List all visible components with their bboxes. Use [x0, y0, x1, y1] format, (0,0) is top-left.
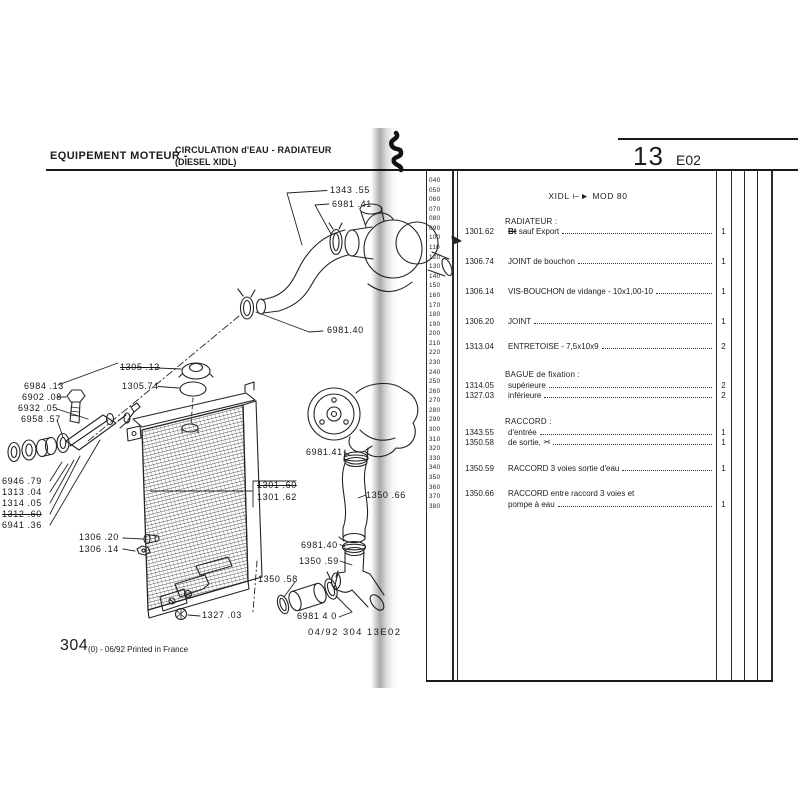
- part-ref: 1306.14: [460, 287, 505, 296]
- part-label-1313-04: 1313 .04: [2, 487, 42, 497]
- part-description: d'entrée: [508, 428, 537, 437]
- part-qty: 1: [716, 438, 731, 447]
- part-label-6981-41-top: 6981 .41: [332, 199, 372, 209]
- table-row: 1306.14 VIS-BOUCHON de vidange - 10x1,00…: [460, 287, 731, 296]
- dotted-leader: [656, 293, 712, 294]
- part-qty: 2: [716, 381, 731, 390]
- outlet-hose-drawing: [287, 582, 329, 612]
- dotted-leader: [562, 233, 712, 234]
- table-row: 1327.03 inférieure 2: [460, 391, 731, 400]
- part-qty: 2: [716, 391, 731, 400]
- part-description: VIS-BOUCHON de vidange - 10x1,00-10: [508, 287, 653, 296]
- table-row: 1306.20 JOINT 1: [460, 317, 731, 326]
- part-description: inférieure: [508, 391, 541, 400]
- scissors-icon: ✂: [543, 438, 551, 447]
- part-note-struck: Bt: [508, 227, 516, 236]
- table-row: 1350.59 RACCORD 3 voies sortie d'eau 1: [460, 464, 731, 473]
- part-qty: 1: [716, 464, 731, 473]
- part-label-6981-40-hose: 6981.40: [327, 325, 364, 335]
- part-description: RACCORD entre raccord 3 voies et: [508, 489, 634, 498]
- dotted-leader: [549, 387, 712, 388]
- page-number: 304: [60, 637, 88, 655]
- part-description: sauf Export: [519, 227, 559, 236]
- part-description: supérieure: [508, 381, 546, 390]
- table-row: 1301.62 Bt sauf Export 1: [460, 227, 731, 236]
- cap-gasket-drawing: [180, 382, 206, 396]
- dotted-leader: [544, 397, 712, 398]
- part-ref: 1350.59: [460, 464, 505, 473]
- part-label-1327-03: 1327 .03: [202, 610, 242, 620]
- part-label-1305-12: 1305 .12: [120, 362, 160, 372]
- part-label-1305-74: 1305.74: [122, 381, 159, 391]
- part-label-6981-40-tee: 6981.40: [301, 540, 338, 550]
- part-label-6981-40-bottom: 6981 4 0: [297, 611, 337, 621]
- pump-hose-drawing: [342, 458, 367, 543]
- table-row: 1314.05 supérieure 2: [460, 381, 731, 390]
- part-description-line2: pompe à eau: [508, 500, 555, 509]
- part-description: de sortie,: [508, 438, 541, 447]
- table-section-radiateur: RADIATEUR :: [505, 217, 557, 226]
- part-ref: 1301.62: [460, 227, 505, 236]
- page-print-note: (0) - 06/92 Printed in France: [88, 645, 188, 654]
- dotted-leader: [602, 348, 712, 349]
- part-ref: 1314.05: [460, 381, 505, 390]
- outlet-axis-dashed: [253, 561, 257, 612]
- part-label-1343-55: 1343 .55: [330, 185, 370, 195]
- table-section-raccord: RACCORD :: [505, 417, 552, 426]
- part-label-1312-60: 1312 .60: [2, 509, 42, 519]
- catalog-page: { "header": { "section_title": "EQUIPEME…: [0, 0, 800, 800]
- part-label-1350-58: 1350 .58: [258, 574, 298, 584]
- part-label-1350-59: 1350 .59: [299, 556, 339, 566]
- part-qty: 1: [716, 227, 731, 236]
- exploded-parts-diagram: [0, 0, 800, 800]
- dotted-leader: [578, 263, 712, 264]
- part-qty: 1: [716, 428, 731, 437]
- table-row: 1306.74 JOINT de bouchon 1: [460, 257, 731, 266]
- dotted-leader: [540, 434, 712, 435]
- table-row: 1350.58 de sortie,✂ 1: [460, 438, 731, 447]
- inlet-hose-drawing: [257, 230, 349, 314]
- part-ref: 1313.04: [460, 342, 505, 351]
- part-ref: 1343.55: [460, 428, 505, 437]
- dotted-leader: [534, 323, 712, 324]
- part-description: JOINT de bouchon: [508, 257, 575, 266]
- part-label-6981-41-pump: 6981.41: [306, 447, 343, 457]
- part-label-6946-79: 6946 .79: [2, 476, 42, 486]
- part-label-6941-36: 6941 .36: [2, 520, 42, 530]
- part-qty: 1: [716, 500, 731, 509]
- hose-clamp-drawing-inlet-end: [238, 289, 255, 319]
- radiator-drawing: [127, 382, 262, 618]
- part-label-1350-66: 1350 .66: [366, 490, 406, 500]
- part-label-1301-62: 1301 .62: [257, 492, 297, 502]
- part-label-6958-57: 6958 .57: [21, 414, 61, 424]
- washers-drawing: [8, 434, 69, 462]
- mounting-arm-drawing: [66, 403, 140, 450]
- part-label-1306-20: 1306 .20: [79, 532, 119, 542]
- dotted-leader: [553, 444, 712, 445]
- part-ref: 1306.74: [460, 257, 505, 266]
- part-description: ENTRETOISE - 7,5x10x9: [508, 342, 599, 351]
- part-label-6932-05: 6932 .05: [18, 403, 58, 413]
- dotted-leader: [622, 470, 712, 471]
- part-label-6902-08: 6902 .08: [22, 392, 62, 402]
- part-qty: 1: [716, 257, 731, 266]
- part-ref: 1350.58: [460, 438, 505, 447]
- part-ref: 1327.03: [460, 391, 505, 400]
- three-way-connector-drawing: [332, 548, 387, 613]
- margin-line-numbers: 040 050 060 070 080 090 100 110 120 130 …: [429, 176, 451, 511]
- part-description: RACCORD 3 voies sortie d'eau: [508, 464, 619, 473]
- part-label-1314-05: 1314 .05: [2, 498, 42, 508]
- filler-cap-drawing: [179, 363, 213, 379]
- part-label-1306-14: 1306 .14: [79, 544, 119, 554]
- part-ref: 1350.66: [460, 489, 505, 498]
- part-qty: 1: [716, 287, 731, 296]
- dotted-leader: [558, 506, 712, 507]
- model-range-header: XIDL ⊢► MOD 80: [460, 191, 716, 202]
- hose-clamp-drawing-upper: [329, 223, 342, 255]
- table-row: 1313.04 ENTRETOISE - 7,5x10x9 2: [460, 342, 731, 351]
- part-qty: 1: [716, 317, 731, 326]
- table-row-continuation: pompe à eau 1: [460, 500, 731, 509]
- table-row: 1350.66 RACCORD entre raccord 3 voies et: [460, 489, 731, 498]
- part-ref: 1306.20: [460, 317, 505, 326]
- part-label-6984-13: 6984 .13: [24, 381, 64, 391]
- bolt-drawing: [67, 390, 85, 423]
- part-qty: 2: [716, 342, 731, 351]
- part-description: JOINT: [508, 317, 531, 326]
- plate-reference: 04/92 304 13E02: [308, 627, 401, 638]
- table-row: 1343.55 d'entrée 1: [460, 428, 731, 437]
- part-label-1301-60: 1301 .60: [257, 480, 297, 490]
- handwritten-scribble: [391, 133, 401, 170]
- bottom-plug-drawing: [176, 609, 187, 620]
- table-section-bague: BAGUE de fixation :: [505, 370, 580, 379]
- hose-clamp-drawing-outlet-right: [323, 571, 340, 601]
